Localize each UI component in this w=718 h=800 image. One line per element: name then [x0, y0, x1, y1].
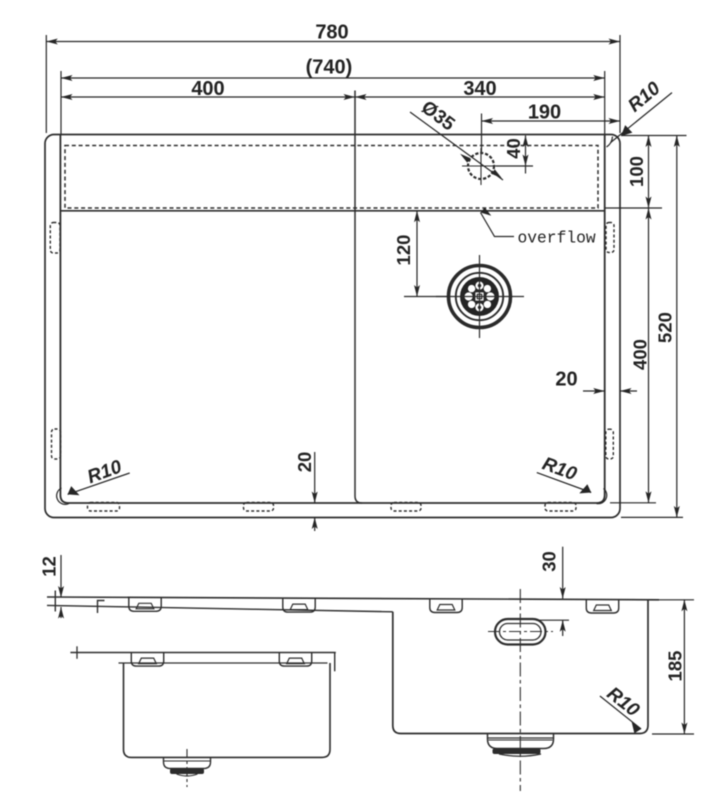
svg-text:20: 20 — [555, 369, 577, 391]
svg-text:overflow: overflow — [518, 229, 596, 248]
svg-text:400: 400 — [630, 339, 651, 370]
svg-text:R10: R10 — [539, 454, 579, 486]
svg-text:120: 120 — [393, 235, 414, 266]
svg-text:R10: R10 — [603, 683, 644, 721]
svg-text:20: 20 — [294, 452, 315, 473]
svg-text:340: 340 — [463, 78, 496, 100]
svg-text:40: 40 — [503, 138, 524, 159]
svg-text:Ø35: Ø35 — [417, 97, 459, 136]
svg-text:190: 190 — [528, 102, 561, 124]
svg-text:30: 30 — [539, 551, 560, 572]
svg-text:780: 780 — [315, 22, 348, 44]
svg-text:400: 400 — [191, 78, 224, 100]
svg-text:12: 12 — [39, 556, 60, 577]
svg-text:R10: R10 — [85, 456, 125, 488]
svg-text:520: 520 — [655, 312, 676, 343]
svg-text:185: 185 — [665, 651, 686, 682]
svg-text:(740): (740) — [306, 57, 353, 79]
svg-text:100: 100 — [626, 156, 647, 187]
svg-text:R10: R10 — [624, 78, 665, 117]
